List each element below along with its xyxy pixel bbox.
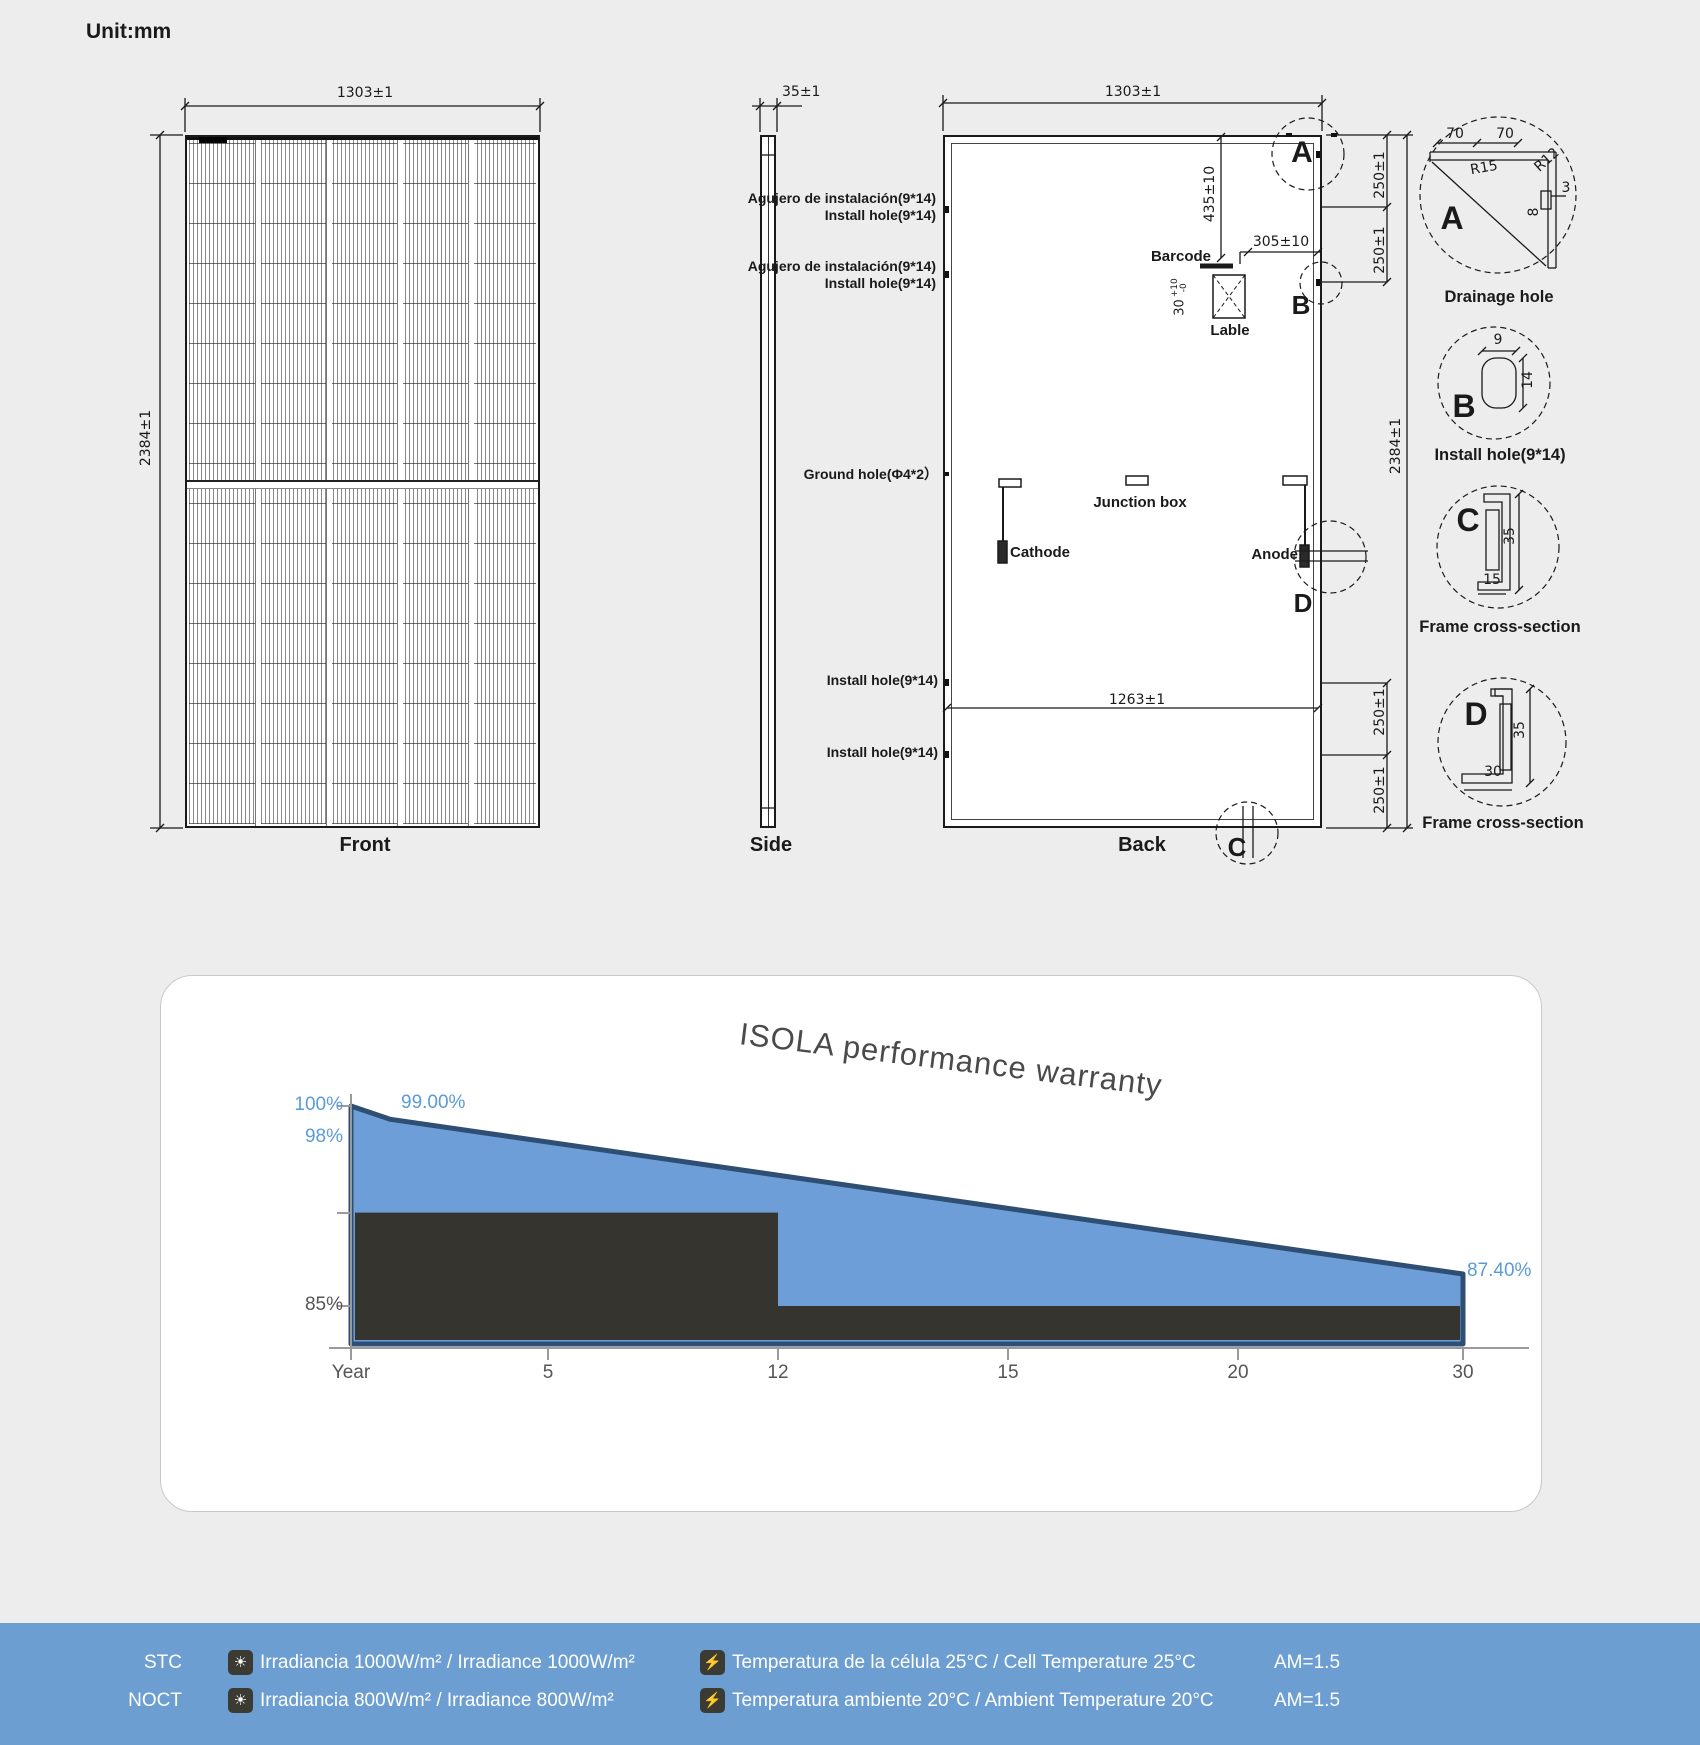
anode-connector (1283, 476, 1307, 485)
barcode-label: Barcode (1125, 248, 1211, 265)
detail-b-letter: B (1446, 388, 1482, 425)
cathode-label: Cathode (1010, 544, 1100, 561)
label-offset-dim: 305±10 (1238, 234, 1324, 250)
detail-c-dim-15: 15 (1477, 572, 1507, 588)
callout-install-hole-2: Agujero de instalación(9*14) Install hol… (664, 258, 936, 292)
x-tick-5: 5 (528, 1362, 568, 1384)
detail-a-dim-70-2: 70 (1488, 126, 1522, 142)
detail-b-caption: Install hole(9*14) (1410, 446, 1590, 465)
battery-lightning-icon: ⚡ (700, 1688, 725, 1713)
air-mass-text-noct: AM=1.5 (1274, 1690, 1340, 1712)
x-tick-15: 15 (988, 1362, 1028, 1384)
back-view-label: Back (1102, 834, 1182, 857)
section-mark-d: D (1288, 588, 1318, 619)
back-height-dim: 2384±1 (1388, 414, 1404, 478)
cathode-plug (998, 541, 1007, 563)
hole-marks (945, 133, 1337, 758)
y-tick-100: 100% (259, 1094, 343, 1116)
detail-a-dim-8: 8 (1526, 202, 1542, 222)
irradiance-text-stc: Irradiancia 1000W/m² / Irradiance 1000W/… (260, 1652, 635, 1674)
y-tick-98: 98% (259, 1126, 343, 1148)
y-tick-85: 85% (259, 1294, 343, 1316)
x-tick-12: 12 (758, 1362, 798, 1384)
detail-c-dim-35: 35 (1502, 524, 1518, 548)
irradiance-text-noct: Irradiancia 800W/m² / Irradiance 800W/m² (260, 1690, 614, 1712)
corner-spacing-dim-2: 250±1 (1372, 220, 1388, 280)
detail-b-dim-14: 14 (1520, 368, 1536, 392)
anode-label: Anode (1214, 546, 1298, 563)
condition-label-stc: STC (118, 1652, 182, 1674)
x-tick-year: Year (319, 1362, 383, 1384)
detail-a-dim-70-1: 70 (1438, 126, 1472, 142)
battery-lightning-icon: ⚡ (700, 1650, 725, 1675)
detail-d-letter: D (1458, 696, 1494, 733)
air-mass-text-stc: AM=1.5 (1274, 1652, 1340, 1674)
hole-span-dim: 1263±1 (1098, 692, 1176, 708)
callout-install-hole-4: Install hole(9*14) (734, 744, 938, 761)
junction-box-shape (1126, 476, 1148, 485)
condition-label-noct: NOCT (112, 1690, 182, 1712)
detail-c-caption: Frame cross-section (1405, 618, 1595, 637)
side-thickness-dim: 35±1 (782, 84, 852, 100)
lable-label: Lable (1198, 322, 1262, 339)
cathode-connector (999, 479, 1021, 487)
detail-a-letter: A (1432, 200, 1472, 237)
callout-install-hole-3: Install hole(9*14) (734, 672, 938, 689)
corner-spacing-dim-4: 250±1 (1372, 760, 1388, 820)
back-width-dim: 1303±1 (1088, 84, 1178, 100)
section-mark-circles (1216, 118, 1366, 864)
x-tick-30: 30 (1443, 1362, 1483, 1384)
label-size-dim: 30+10-0 (1171, 265, 1189, 329)
side-view-label: Side (736, 834, 806, 857)
front-width-dim: 1303±1 (320, 85, 410, 101)
detail-b-dim-9: 9 (1486, 332, 1510, 348)
warranty-chart-card: ISOLA performance warranty 100% 98% 85% … (160, 975, 1542, 1512)
datasheet-page: Unit:mm (0, 0, 1700, 1745)
callout-ground-hole: Ground hole(Φ4*2） (694, 466, 938, 483)
x-tick-20: 20 (1218, 1362, 1258, 1384)
annotation-99: 99.00% (401, 1092, 511, 1114)
section-mark-c: C (1222, 832, 1252, 863)
barcode-offset-dim: 435±10 (1202, 163, 1218, 225)
corner-spacing-dim-1: 250±1 (1372, 145, 1388, 205)
sun-icon: ☀ (228, 1650, 253, 1675)
detail-c-letter: C (1450, 502, 1486, 539)
detail-a-caption: Drainage hole (1418, 288, 1580, 307)
annotation-874: 87.40% (1467, 1260, 1577, 1282)
section-mark-a: A (1282, 136, 1322, 170)
anode-plug (1300, 545, 1309, 567)
detail-a-dim-3: 3 (1556, 180, 1576, 196)
callout-install-hole-1: Agujero de instalación(9*14) Install hol… (664, 190, 936, 224)
corner-spacing-dim-3: 250±1 (1372, 682, 1388, 742)
sun-icon: ☀ (228, 1688, 253, 1713)
junction-box-label: Junction box (1086, 494, 1194, 511)
detail-d-dim-30: 30 (1474, 764, 1512, 780)
front-view-label: Front (300, 834, 430, 857)
section-mark-b: B (1286, 290, 1316, 321)
detail-d-dim-35: 35 (1512, 718, 1528, 742)
test-conditions-bar: STC ☀ Irradiancia 1000W/m² / Irradiance … (0, 1623, 1700, 1745)
temperature-text-stc: Temperatura de la célula 25°C / Cell Tem… (732, 1652, 1196, 1674)
temperature-text-noct: Temperatura ambiente 20°C / Ambient Temp… (732, 1690, 1214, 1712)
detail-d-caption: Frame cross-section (1408, 814, 1598, 833)
front-height-dim: 2384±1 (138, 406, 154, 470)
